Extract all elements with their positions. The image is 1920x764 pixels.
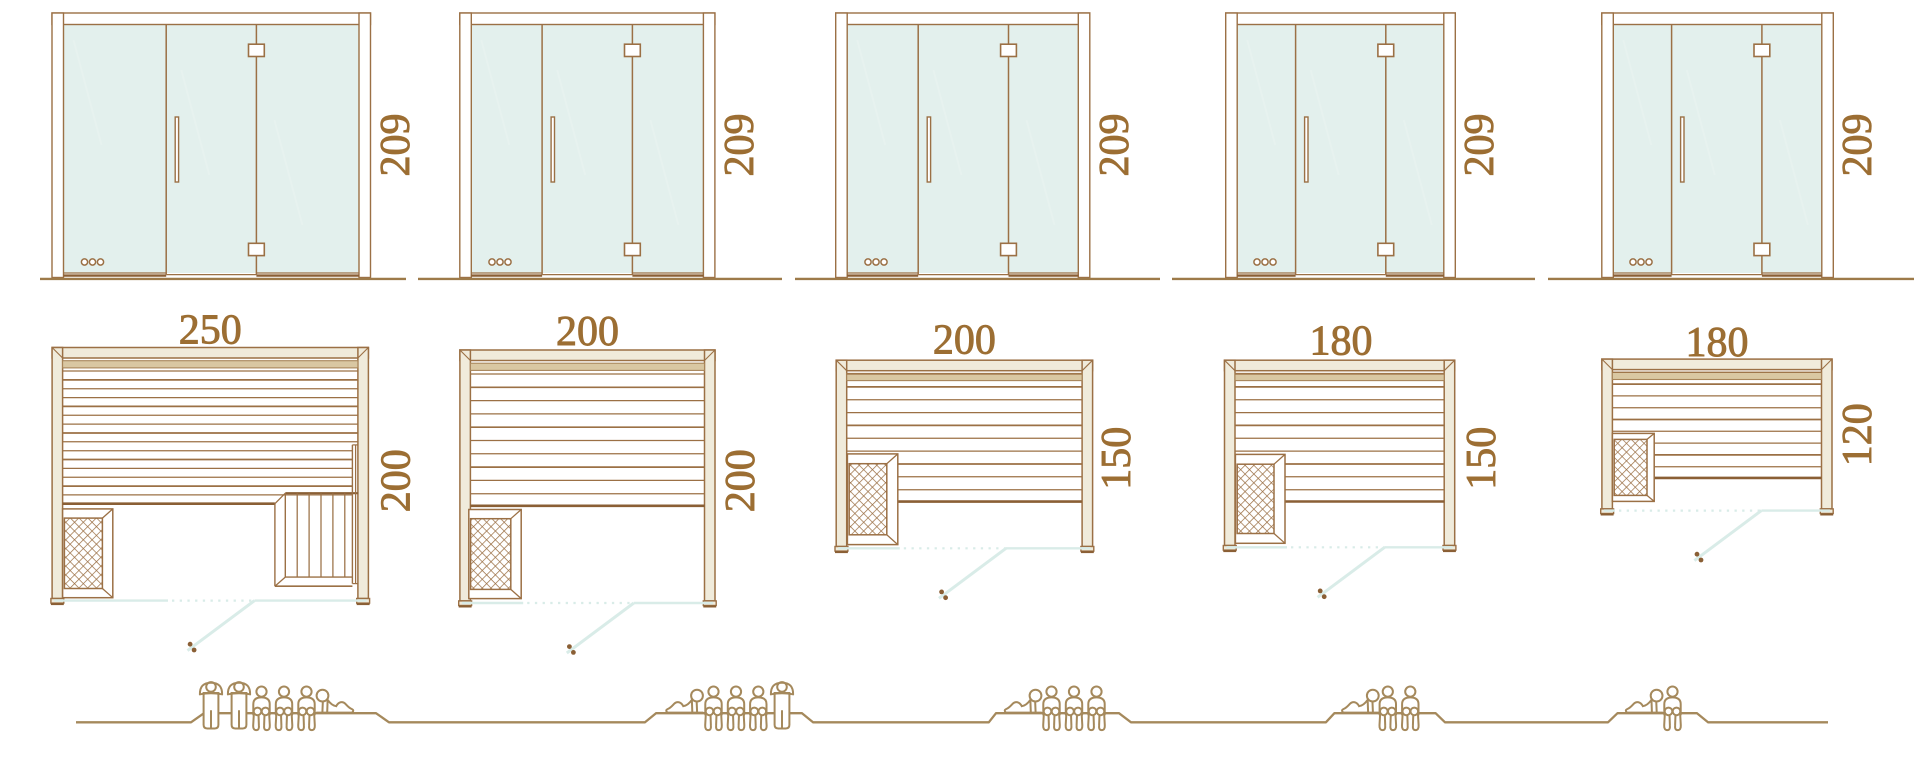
svg-text:150: 150	[1459, 427, 1505, 490]
svg-text:180: 180	[1686, 320, 1749, 366]
svg-text:200: 200	[374, 449, 420, 512]
svg-text:200: 200	[933, 317, 996, 363]
svg-text:200: 200	[718, 449, 764, 512]
svg-text:180: 180	[1310, 318, 1373, 364]
svg-text:209: 209	[1092, 114, 1138, 177]
svg-text:209: 209	[373, 114, 419, 177]
svg-text:200: 200	[556, 309, 619, 355]
svg-text:250: 250	[179, 308, 242, 354]
svg-text:209: 209	[1835, 114, 1881, 177]
svg-text:209: 209	[717, 114, 763, 177]
svg-text:120: 120	[1835, 403, 1881, 466]
svg-text:150: 150	[1094, 427, 1140, 490]
svg-text:209: 209	[1457, 114, 1503, 177]
